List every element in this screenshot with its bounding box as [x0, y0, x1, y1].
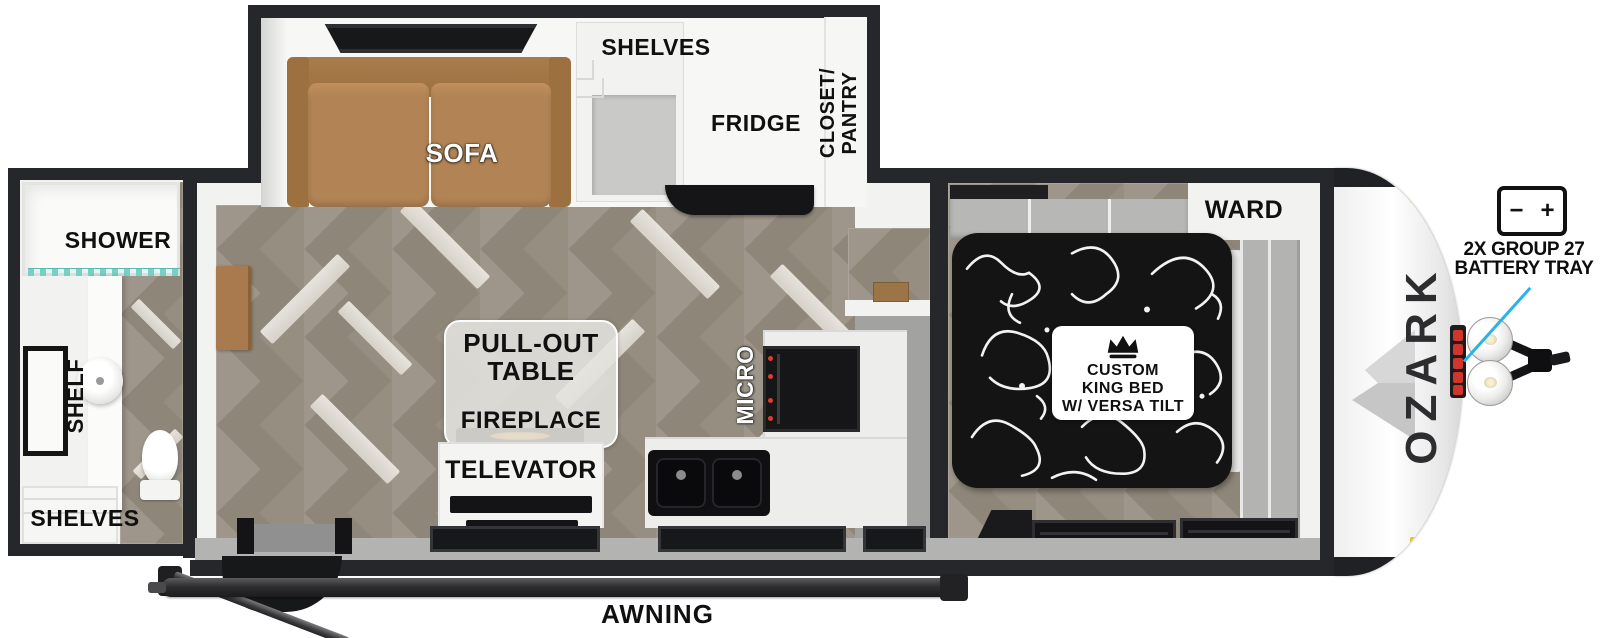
- battery-cell: [1453, 358, 1463, 369]
- battery-plus-symbol: +: [1540, 199, 1554, 223]
- floorplan-canvas: SOFA SHELVES FRIDGE CLOSET/ PANTRY SHOWE…: [0, 0, 1600, 638]
- shelf-line: [22, 498, 118, 500]
- sofa-arm-right: [549, 57, 571, 207]
- shelf-label: SHELF: [64, 348, 88, 444]
- slideout-top-wall: [248, 5, 880, 18]
- closet-pantry-label: CLOSET/ PANTRY: [817, 48, 861, 178]
- battery-callout-line1: 2X GROUP 27: [1448, 240, 1600, 259]
- wardrobe-separator: [1268, 240, 1271, 545]
- shower-glass-door: [28, 268, 180, 276]
- shower-label: SHOWER: [48, 226, 188, 254]
- battery-cell: [1453, 385, 1463, 395]
- hall-bottom-wall: [845, 300, 930, 316]
- propane-tank: [1467, 317, 1513, 363]
- bed-label-card: CUSTOM KING BED W/ VERSA TILT: [1052, 326, 1194, 420]
- battery-icon: − +: [1497, 186, 1567, 236]
- entry-door-post: [237, 518, 254, 554]
- wall-table: [216, 266, 251, 350]
- entry-door-threshold: [254, 524, 335, 552]
- front-wall-edge: [1320, 168, 1334, 576]
- sink-basin-right: [712, 458, 762, 508]
- bed-label-line2: KING BED: [1052, 380, 1194, 398]
- micro-indicator: [768, 374, 773, 379]
- bed-label-line3: W/ VERSA TILT: [1052, 398, 1194, 416]
- slideout-right-wall: [867, 5, 880, 183]
- awning-end-cap-left: [148, 582, 166, 593]
- awning-roller: [162, 578, 962, 597]
- battery-cell: [1453, 344, 1463, 355]
- battery-minus-symbol: −: [1509, 199, 1523, 223]
- fridge-label: FRIDGE: [706, 108, 806, 138]
- micro-door-line: [777, 354, 780, 424]
- closet-pantry-line1: CLOSET/: [817, 48, 839, 178]
- living-left-wall-band: [197, 183, 216, 540]
- sink-faucet: [732, 470, 742, 480]
- range-hood-counter: [665, 185, 814, 215]
- crown-icon: [1104, 333, 1142, 360]
- shelves-step-line: [576, 60, 594, 80]
- awning-end-bracket-right: [940, 574, 968, 601]
- clearance-marker: [1410, 187, 1417, 203]
- pullout-label-line1: PULL-OUT: [446, 330, 616, 358]
- shelves-step-line: [576, 78, 604, 98]
- ward-label: WARD: [1196, 196, 1292, 224]
- battery-callout-line2: BATTERY TRAY: [1448, 259, 1600, 278]
- fireplace-label: FIREPLACE: [446, 408, 616, 434]
- battery-cell: [1453, 372, 1463, 383]
- sink-faucet: [676, 470, 686, 480]
- slideout-inner-shadow: [261, 18, 287, 207]
- front-cap-top-trim: [1334, 168, 1462, 187]
- sofa-label: SOFA: [407, 139, 517, 169]
- televator-label: TELEVATOR: [444, 456, 598, 484]
- brand-wordmark: OZARK: [1395, 229, 1449, 499]
- front-cap-bottom-trim: [1334, 557, 1462, 576]
- bathroom-section: SHOWER SHELF SHELVES: [8, 168, 195, 556]
- pullout-table: PULL-OUT TABLE FIREPLACE: [444, 320, 618, 448]
- micro-indicator: [768, 416, 773, 421]
- slideout-shelves-label: SHELVES: [600, 33, 712, 61]
- entry-door-post: [335, 518, 352, 554]
- sofa-window: [318, 24, 544, 53]
- shelves-unit-floor: [592, 95, 676, 195]
- bottom-wall-outer: [190, 560, 1340, 576]
- toilet-bowl: [142, 430, 178, 484]
- bed-label-line1: CUSTOM: [1052, 362, 1194, 380]
- bottom-window: [863, 526, 926, 552]
- toilet: [140, 430, 180, 498]
- propane-tank: [1467, 360, 1513, 406]
- awning-label: AWNING: [575, 598, 740, 632]
- bedroom-window-sill: [950, 185, 1048, 199]
- slideout-section: SOFA SHELVES FRIDGE CLOSET/ PANTRY: [248, 5, 880, 207]
- bottom-window: [658, 526, 846, 552]
- tv-screen: [450, 496, 592, 513]
- micro-indicator: [768, 398, 773, 403]
- front-cap: OZARK: [1334, 168, 1462, 576]
- grate-slat: [1188, 530, 1290, 533]
- micro-indicator: [768, 356, 773, 361]
- kitchen-sink: [648, 450, 770, 516]
- bedroom-divider-wall: [930, 168, 948, 558]
- hitch-handle: [1549, 351, 1571, 366]
- sink-drain: [96, 377, 104, 385]
- microwave: [763, 346, 860, 432]
- sofa-arm-left: [287, 57, 309, 207]
- closet-pantry-line2: PANTRY: [839, 48, 861, 178]
- tv-cabinet: TELEVATOR: [438, 442, 604, 528]
- toilet-tank: [140, 480, 180, 500]
- tank-valve: [1484, 377, 1497, 388]
- clearance-marker: [1410, 537, 1417, 553]
- bottom-window: [430, 526, 600, 552]
- mirror: [23, 346, 68, 456]
- bedroom-step: [873, 282, 909, 302]
- wardrobe: [1240, 240, 1300, 545]
- sink-basin-left: [656, 458, 706, 508]
- bathroom-shelves-label: SHELVES: [22, 504, 148, 532]
- hitch-coupler: [1528, 349, 1552, 372]
- battery-callout: 2X GROUP 27 BATTERY TRAY: [1448, 240, 1600, 278]
- grate-slat: [1040, 532, 1168, 535]
- slideout-left-wall: [248, 5, 261, 183]
- sofa: SOFA: [287, 57, 571, 207]
- pullout-label-line2: TABLE: [446, 358, 616, 386]
- battery-cell: [1453, 330, 1463, 341]
- micro-label: MICRO: [733, 338, 757, 432]
